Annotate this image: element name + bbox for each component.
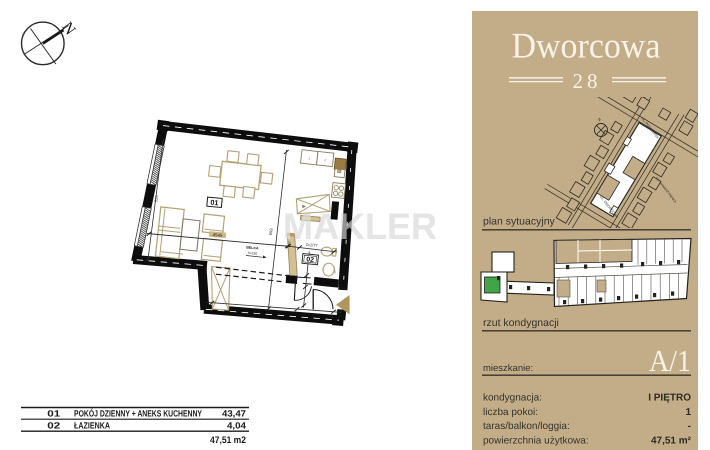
- svg-text:01: 01: [47, 409, 60, 419]
- svg-text:liczba pokoi:: liczba pokoi:: [483, 407, 538, 418]
- svg-text:taras/balkon/loggia:: taras/balkon/loggia:: [483, 421, 570, 432]
- svg-text:MAKLER: MAKLER: [283, 206, 437, 247]
- svg-text:Dworcowa: Dworcowa: [512, 26, 661, 66]
- svg-text:4545: 4545: [212, 232, 223, 238]
- svg-text:4,04: 4,04: [227, 420, 246, 430]
- svg-text:1: 1: [685, 407, 691, 418]
- svg-text:POKÓJ DZIENNY + ANEKS KUCHENNY: POKÓJ DZIENNY + ANEKS KUCHENNY: [74, 409, 202, 419]
- svg-text:28: 28: [573, 69, 602, 93]
- svg-text:I PIĘTRO: I PIĘTRO: [648, 393, 691, 404]
- svg-text:mieszkanie:: mieszkanie:: [483, 363, 533, 374]
- svg-text:ŁAZIENKA: ŁAZIENKA: [74, 420, 110, 430]
- svg-text:kondygnacja:: kondygnacja:: [483, 393, 542, 404]
- svg-text:47,51 m2: 47,51 m2: [210, 435, 246, 446]
- svg-text:02: 02: [47, 420, 60, 430]
- svg-text:h=220: h=220: [248, 251, 258, 256]
- svg-text:plan sytuacyjny: plan sytuacyjny: [483, 216, 556, 228]
- svg-text:47,51 m²: 47,51 m²: [651, 435, 692, 446]
- svg-text:A/1: A/1: [649, 344, 691, 378]
- svg-text:01: 01: [210, 198, 219, 208]
- svg-text:02: 02: [306, 256, 314, 264]
- svg-text:-: -: [688, 421, 691, 432]
- svg-text:43,47: 43,47: [222, 409, 246, 419]
- svg-text:rzut kondygnacji: rzut kondygnacji: [483, 317, 559, 329]
- svg-text:powierzchnia użytkowa:: powierzchnia użytkowa:: [483, 435, 589, 446]
